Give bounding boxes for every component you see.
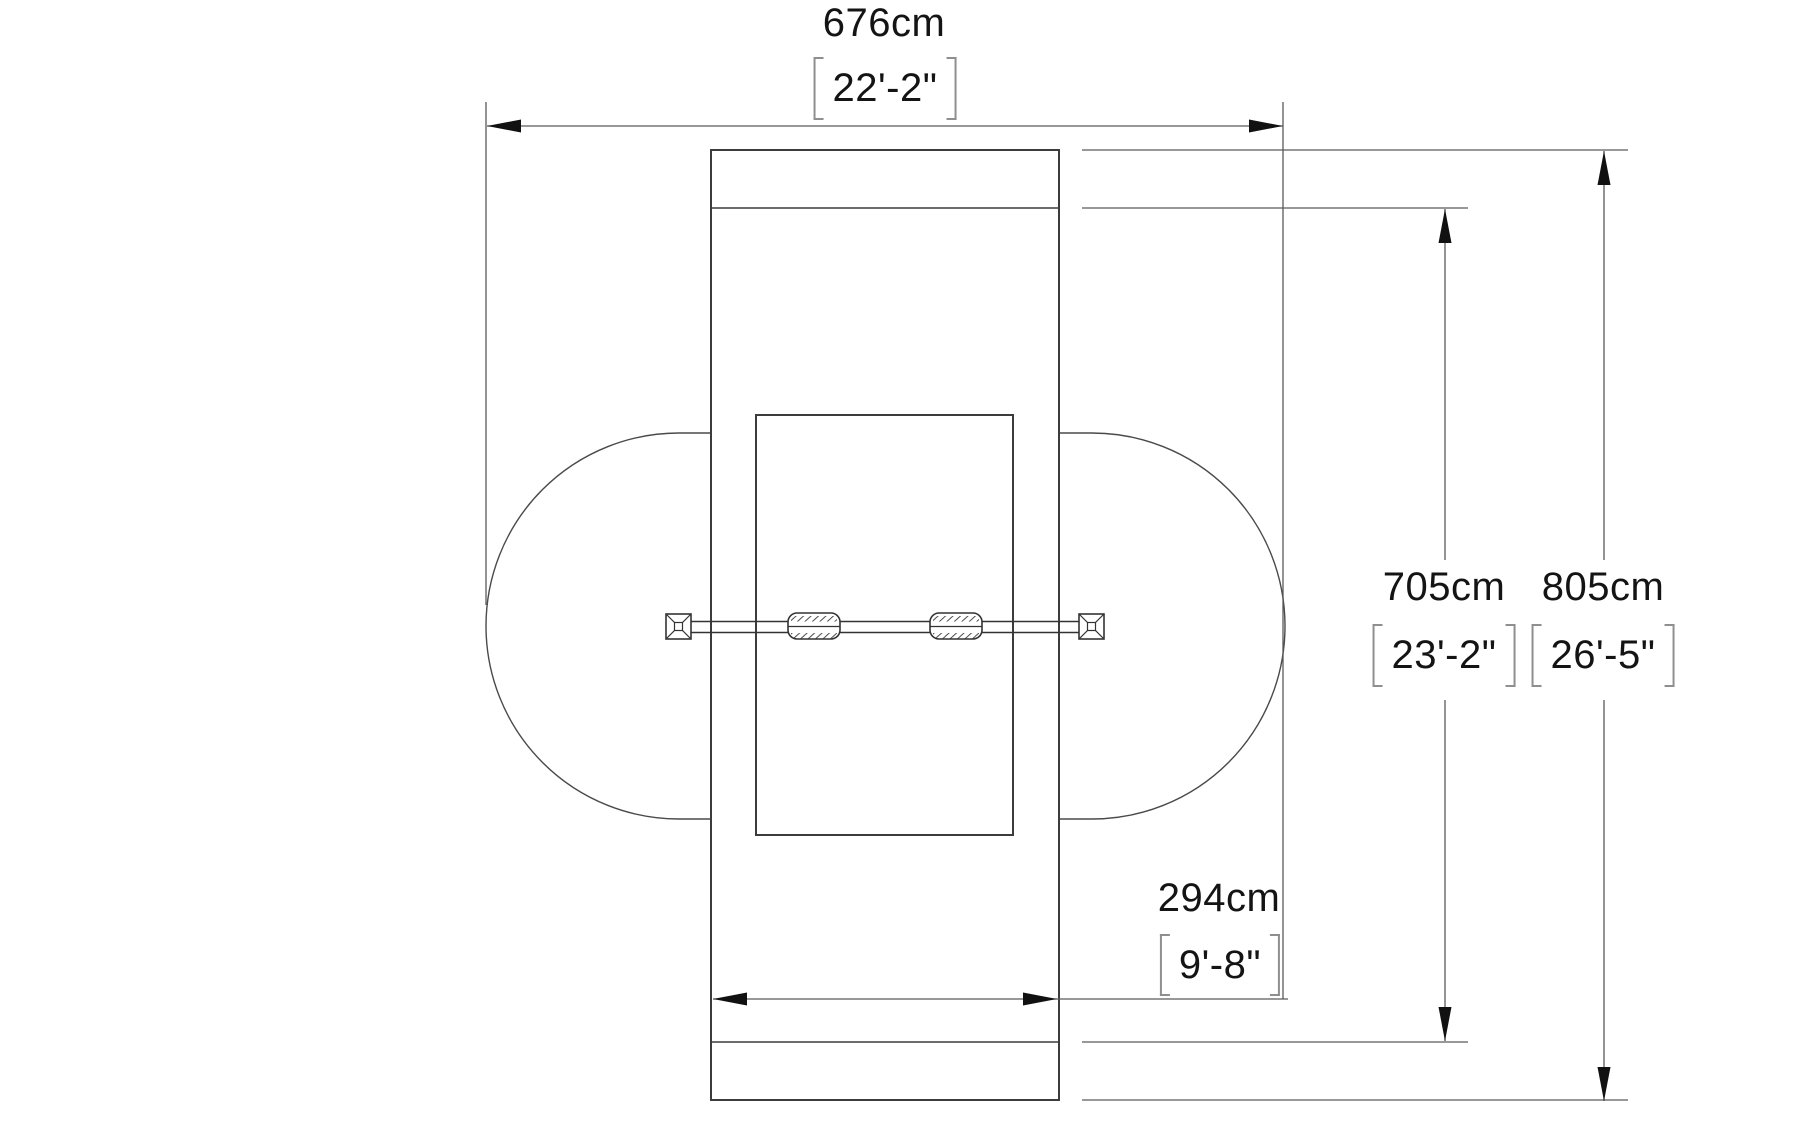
dim-label-outer-height-imperial: 26'-5" xyxy=(1532,624,1675,687)
bracket-left-icon xyxy=(1160,934,1170,996)
arrow-left-icon xyxy=(487,120,521,133)
bracket-left-icon xyxy=(1373,624,1383,687)
arrow-up-icon xyxy=(1439,209,1452,243)
arrow-right-icon xyxy=(1249,120,1283,133)
dim-label-bottom-width-imperial: 9'-8" xyxy=(1160,934,1280,996)
bracket-left-icon xyxy=(1532,624,1542,687)
bracket-left-icon xyxy=(814,57,824,120)
bracket-right-icon xyxy=(1270,934,1280,996)
beam-post-cap-right-icon xyxy=(1079,614,1104,639)
swing-hanger-right-icon xyxy=(930,613,982,639)
dim-label-top-width-metric: 676cm xyxy=(823,2,946,44)
bracket-right-icon xyxy=(1664,624,1674,687)
arrow-down-icon xyxy=(1439,1007,1452,1041)
dim-label-inner-height-imperial: 23'-2" xyxy=(1373,624,1516,687)
bracket-right-icon xyxy=(1505,624,1515,687)
dim-label-inner-height-metric: 705cm xyxy=(1383,566,1506,608)
dim-label-bottom-width-metric: 294cm xyxy=(1158,877,1281,919)
plan-drawing-canvas: 676cm 22'-2" 705cm 23'-2" 805cm 26'-5" 2… xyxy=(0,0,1800,1125)
plan-drawing xyxy=(0,0,1800,1125)
bracket-right-icon xyxy=(946,57,956,120)
arrow-up-icon xyxy=(1598,151,1611,185)
arrow-down-icon xyxy=(1598,1067,1611,1101)
dim-label-outer-height-metric: 805cm xyxy=(1542,566,1665,608)
beam-post-cap-left-icon xyxy=(666,614,691,639)
dim-label-top-width-imperial: 22'-2" xyxy=(814,57,957,120)
swing-hanger-left-icon xyxy=(788,613,840,639)
